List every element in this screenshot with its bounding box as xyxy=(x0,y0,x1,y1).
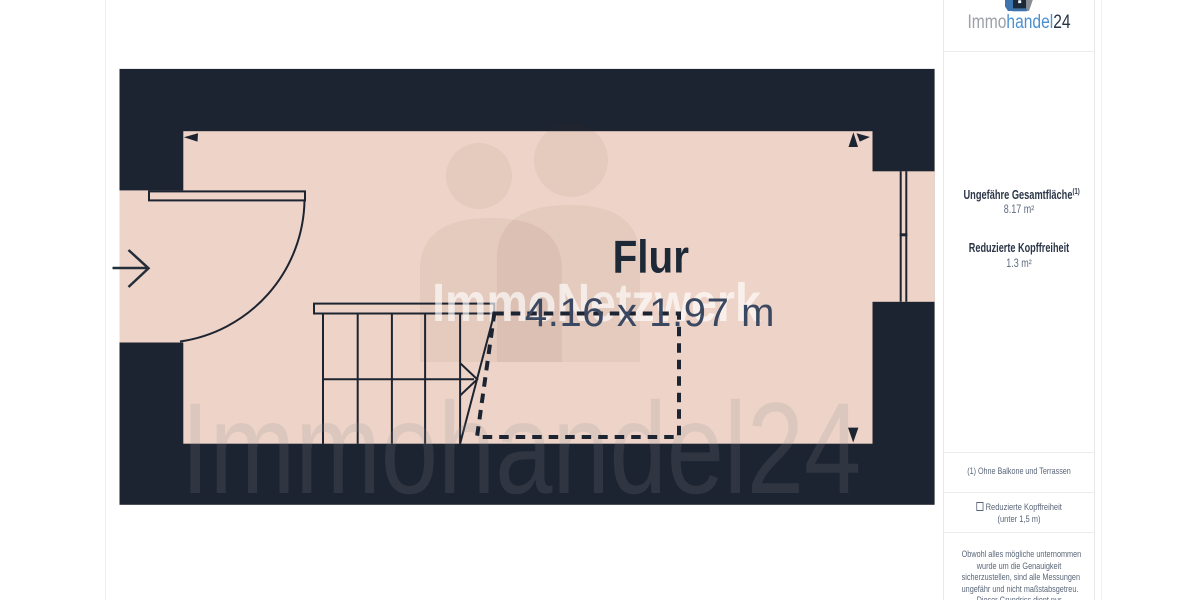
svg-text:Flur: Flur xyxy=(613,232,690,283)
svg-text:Immohandel24: Immohandel24 xyxy=(181,375,861,520)
svg-text:4.16 x 1.97 m: 4.16 x 1.97 m xyxy=(525,291,775,335)
